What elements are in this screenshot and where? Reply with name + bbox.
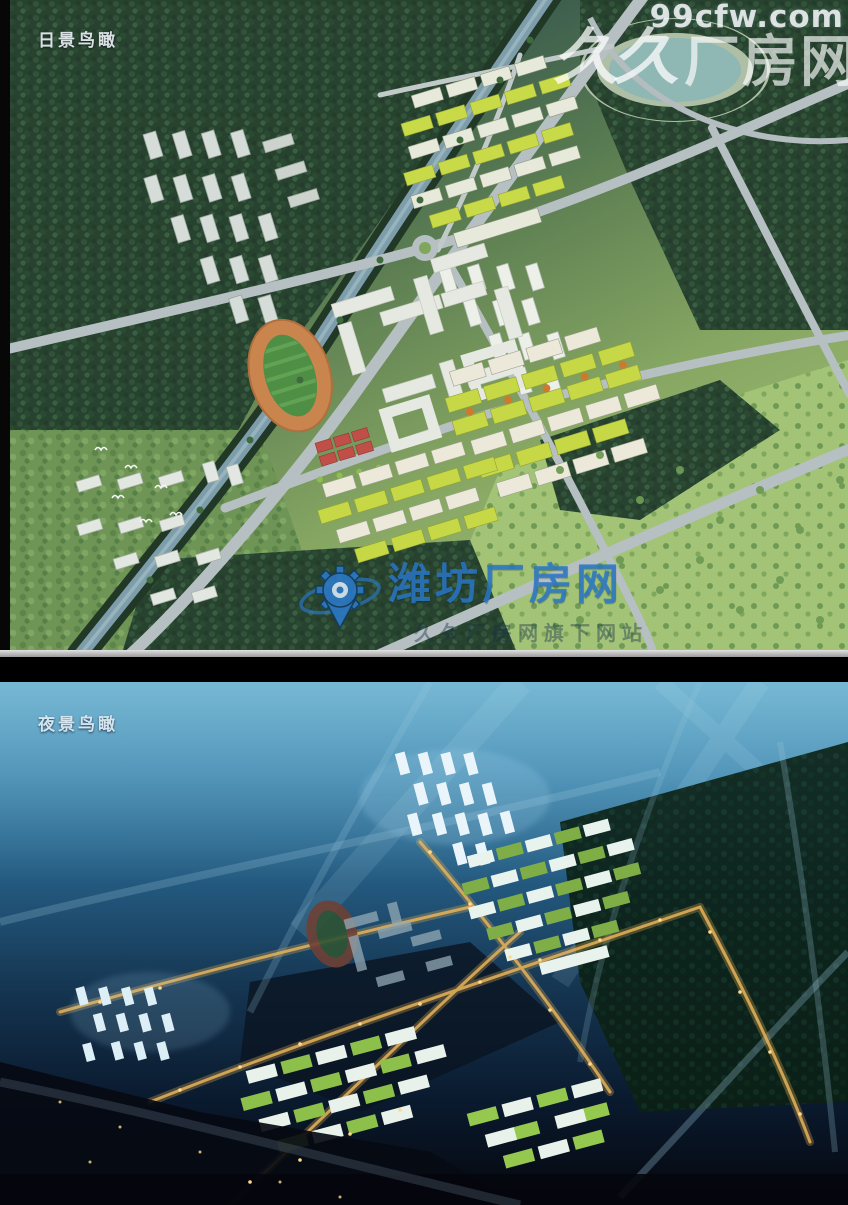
night-aerial-render bbox=[0, 682, 848, 1205]
day-panel-label: 日景鸟瞰 bbox=[38, 26, 118, 51]
wfcfw-brand-text: 潍坊厂房网 bbox=[388, 564, 648, 607]
wfcfw-texts: 潍坊厂房网 久久厂房网旗下网站 bbox=[388, 558, 648, 646]
jiujiu-logo-icon: 久久 bbox=[550, 28, 685, 89]
gear-location-pin-icon bbox=[298, 558, 382, 638]
night-render-panel: 夜景鸟瞰 bbox=[0, 682, 848, 1205]
wfcfw-watermark: 潍坊厂房网 久久厂房网旗下网站 bbox=[298, 558, 648, 646]
day-render-panel: 日景鸟瞰 99cfw.com 久久 厂房网 bbox=[0, 0, 848, 650]
wfcfw-slogan-text: 久久厂房网旗下网站 bbox=[414, 617, 648, 646]
99cfw-logo-row: 久久 厂房网 bbox=[558, 25, 848, 91]
day-aerial-render bbox=[0, 0, 848, 650]
changfangwang-text: 厂房网 bbox=[684, 35, 848, 91]
99cfw-watermark: 99cfw.com 久久 厂房网 bbox=[558, 2, 844, 91]
separator-line bbox=[0, 650, 848, 657]
panel-separator bbox=[0, 650, 848, 682]
night-panel-label: 夜景鸟瞰 bbox=[38, 710, 118, 735]
screenshot-root: 日景鸟瞰 99cfw.com 久久 厂房网 bbox=[0, 0, 848, 1205]
left-black-bar bbox=[0, 0, 10, 650]
